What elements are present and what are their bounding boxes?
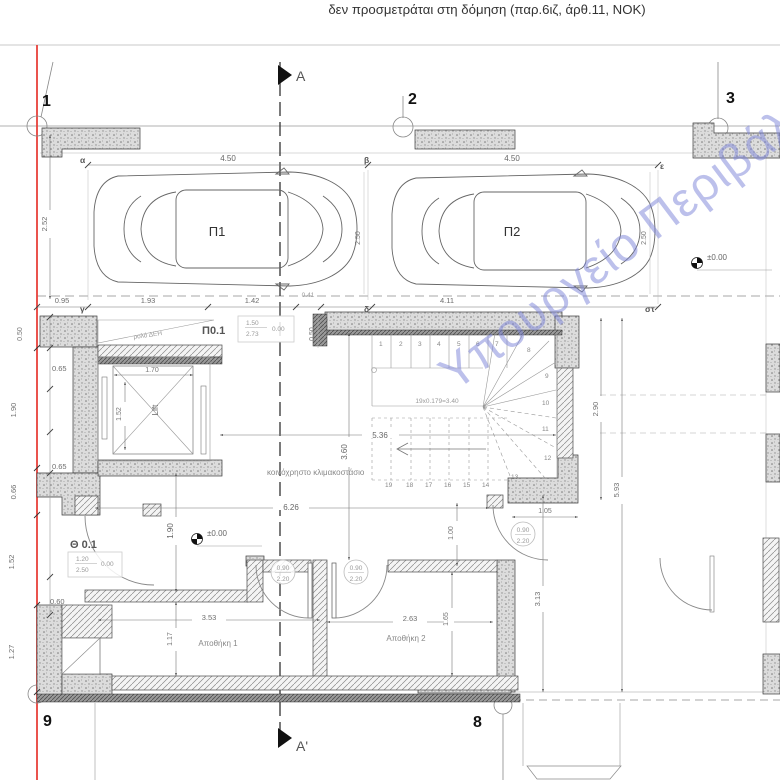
dim-290: 2.90 [591, 402, 600, 417]
level-value-corridor: ±0.00 [207, 529, 228, 538]
dim-105: 1.05 [538, 508, 552, 515]
axis-alpha: α [80, 155, 86, 165]
dim-190-left: 1.90 [9, 403, 18, 418]
page-title: δεν προσμετράται στη δόμηση (παρ.6ιζ, άρ… [328, 2, 645, 17]
svg-text:0.90: 0.90 [517, 527, 530, 534]
dim-050-left: 0.50 [17, 327, 24, 341]
floor-plan-canvas: A A' 1 2 3 8 9 [0, 0, 780, 780]
dim-536: 5.36 [372, 431, 388, 440]
dim-127: 1.27 [7, 645, 16, 660]
dim-450-left: 4.50 [220, 154, 236, 163]
door-p01-height: 2.73 [246, 331, 259, 338]
storage2-label: Αποθήκη 2 [386, 634, 426, 643]
section-arrow-bottom [278, 728, 292, 748]
dim-095: 0.95 [55, 296, 70, 305]
watermark-text: Υπουργείο Περιβάλλοντος [430, 10, 780, 401]
lift-shaft: Lift 1.70 1.52 [98, 357, 210, 461]
svg-text:10: 10 [542, 400, 550, 407]
section-label-top: A [296, 68, 306, 84]
svg-text:12: 12 [544, 455, 552, 462]
svg-text:16: 16 [444, 482, 452, 489]
dim-593: 5.93 [612, 483, 621, 498]
dim-252: 2.52 [40, 217, 49, 232]
dim-250-p1: 2.50 [355, 231, 362, 245]
door-p01-level: 0.00 [272, 326, 285, 333]
dim-065-a: 0.65 [52, 364, 67, 373]
axis-epsilon: ε [660, 161, 664, 171]
dim-165: 1.65 [443, 612, 450, 626]
side-room-door [660, 556, 714, 612]
dim-117: 1.17 [167, 632, 174, 646]
svg-text:13: 13 [511, 474, 519, 481]
dim-041: 0.41 [302, 292, 315, 299]
dim-100: 1.00 [448, 526, 455, 540]
axis-beta: β [364, 155, 369, 165]
door-th01-level: 0.00 [101, 561, 114, 568]
roller-door-label: ρολό ΔΕΗ [133, 329, 163, 341]
lightwell-window [62, 638, 100, 674]
entrance-door: Θ 0.1 1.20 2.50 0.00 [68, 516, 154, 585]
svg-text:2: 2 [399, 341, 403, 348]
svg-text:18: 18 [406, 482, 414, 489]
dim-050-stair: 0.50 [309, 327, 316, 341]
svg-text:3: 3 [418, 341, 422, 348]
axis-gamma: γ [80, 304, 85, 314]
level-value-garage: ±0.00 [707, 253, 728, 262]
dim-353: 3.53 [202, 613, 217, 622]
door-tag-circle-3: 0.90 2.20 [511, 522, 535, 546]
dim-142: 1.42 [245, 296, 260, 305]
svg-text:11: 11 [542, 426, 549, 433]
stair-direction-arrow [397, 443, 486, 455]
svg-text:17: 17 [425, 482, 433, 489]
grid-number-1: 1 [42, 93, 51, 110]
dim-lift-170: 1.70 [145, 367, 159, 374]
dim-450-right: 4.50 [504, 154, 520, 163]
door-th01-height: 2.50 [76, 567, 89, 574]
door-code-th01: Θ 0.1 [70, 539, 97, 551]
svg-text:2.20: 2.20 [517, 538, 530, 545]
grid-number-2: 2 [408, 91, 417, 108]
svg-text:2.20: 2.20 [277, 576, 290, 583]
dim-193: 1.93 [141, 296, 156, 305]
staircase: 1 2 3 4 5 6 7 8 9 10 11 12 13 14 15 16 1… [220, 333, 557, 560]
stair-hall-label: κοινόχρηστο κλιμακοστάσιο [267, 468, 365, 477]
lift-label: Lift [151, 404, 160, 415]
parking-label-p2: Π2 [504, 224, 521, 239]
svg-text:2.20: 2.20 [350, 576, 363, 583]
dim-190-corridor: 1.90 [166, 523, 175, 539]
grid-number-3: 3 [726, 90, 735, 107]
door-tag-circle-1: 0.90 2.20 [271, 560, 295, 584]
stair-formula: 19x0.179=3.40 [415, 398, 459, 405]
door-tag-p01: 1.50 2.73 0.00 [238, 316, 294, 342]
svg-text:0.90: 0.90 [350, 565, 363, 572]
garage-roller-door: ρολό ΔΕΗ Π0.1 1.50 2.73 0.00 0.50 [98, 316, 318, 348]
door-p01-width: 1.50 [246, 320, 259, 327]
axis-sigmatau: στ [645, 304, 655, 314]
dim-060: 0.60 [50, 597, 65, 606]
dim-626: 6.26 [283, 503, 299, 512]
storage-rooms: Αποθήκη 1 3.53 1.17 Αποθήκη 2 2.63 1.65 [98, 572, 493, 676]
grid-markers [27, 62, 728, 780]
storage1-label: Αποθήκη 1 [198, 639, 238, 648]
dim-411: 4.11 [440, 296, 454, 305]
dim-066: 0.66 [9, 485, 18, 500]
svg-text:15: 15 [463, 482, 471, 489]
grid-number-8: 8 [473, 714, 482, 731]
dim-263: 2.63 [403, 614, 418, 623]
level-marker-corridor: ±0.00 [192, 529, 263, 546]
floor-plan-drawing: A A' 1 2 3 8 9 [0, 0, 780, 780]
door-tag-circle-2: 0.90 2.20 [344, 560, 368, 584]
stair-exit-door: 1.05 0.90 2.20 [493, 505, 578, 560]
dim-lift-152: 1.52 [116, 407, 123, 421]
svg-text:0.90: 0.90 [277, 565, 290, 572]
dim-313: 3.13 [533, 592, 542, 607]
dim-152-left: 1.52 [7, 555, 16, 570]
section-arrow-top [278, 65, 292, 85]
svg-text:4: 4 [437, 341, 441, 348]
grid-number-9: 9 [43, 713, 52, 730]
svg-text:19: 19 [385, 482, 393, 489]
car-p1 [94, 168, 357, 290]
dim-360: 3.60 [340, 444, 349, 460]
section-label-bottom: A' [296, 738, 308, 754]
section-line-AA: A A' [278, 62, 308, 754]
axis-delta: δ [364, 304, 369, 314]
svg-text:1: 1 [379, 341, 383, 348]
door-code-p01: Π0.1 [202, 325, 225, 337]
dim-065-b: 0.65 [52, 462, 67, 471]
svg-text:14: 14 [482, 482, 490, 489]
svg-text:9: 9 [545, 373, 549, 380]
level-marker-garage: ±0.00 [692, 253, 773, 270]
parking-label-p1: Π1 [209, 224, 226, 239]
door-th01-width: 1.20 [76, 556, 89, 563]
